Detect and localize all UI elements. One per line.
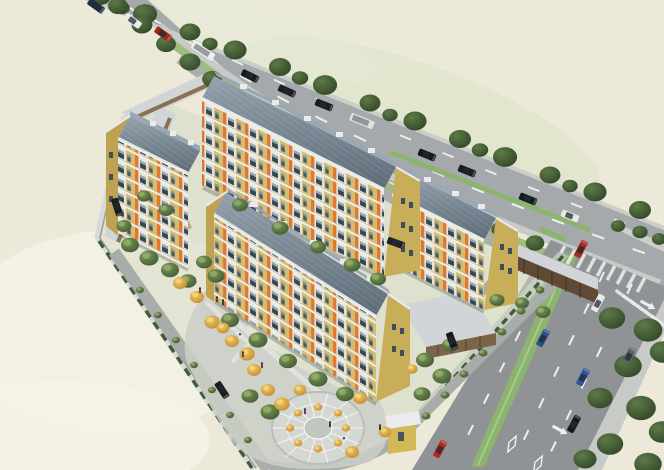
hedge (208, 387, 216, 393)
roof-parapet (272, 100, 279, 105)
courtyard-tree (159, 204, 174, 216)
hedge (226, 412, 234, 418)
autumn-tree (173, 277, 187, 289)
courtyard-tree (249, 332, 268, 347)
courtyard-tree (272, 221, 289, 235)
gable-window (409, 202, 413, 208)
courtyard-tree (279, 354, 297, 368)
gable-window (508, 248, 512, 254)
courtyard-tree (536, 306, 551, 318)
street-tree (634, 318, 663, 341)
street-tree (611, 220, 625, 232)
gable-window (500, 264, 504, 270)
gable-window (109, 174, 113, 180)
street-tree (292, 71, 309, 85)
gable-window (400, 328, 404, 334)
street-tree (223, 41, 246, 60)
courtyard-tree (344, 258, 361, 272)
autumn-tree (217, 323, 230, 334)
courtyard-tree (336, 387, 354, 401)
courtyard-tree (309, 371, 328, 386)
autumn-tree (247, 364, 261, 376)
gable-window (409, 226, 413, 232)
courtyard-tree (416, 353, 434, 367)
plaza-shrub (314, 403, 322, 410)
hedge (441, 391, 450, 398)
courtyard-tree (232, 199, 248, 212)
plaza-center (304, 417, 332, 439)
roof-parapet (336, 132, 343, 137)
plaza-shrub (294, 409, 302, 416)
plaza-shrub (314, 445, 322, 452)
hedge (172, 337, 180, 343)
roof-parapet (452, 191, 459, 196)
hedge (536, 286, 545, 293)
hedge (498, 328, 507, 335)
roof-parapet (240, 84, 247, 89)
gable-window (392, 346, 396, 352)
courtyard-tree (140, 250, 159, 265)
street-tree (629, 201, 651, 219)
roof-parapet (368, 148, 375, 153)
roof-parapet (188, 140, 194, 145)
plaza-shrub (334, 409, 342, 416)
scene-canvas (0, 0, 664, 470)
courtyard-tree (161, 263, 179, 277)
autumn-tree (239, 347, 254, 360)
street-tree (583, 183, 606, 202)
courtyard-tree (117, 220, 132, 232)
autumn-tree (190, 291, 204, 303)
courtyard-tree (196, 256, 212, 269)
street-tree (540, 166, 561, 183)
courtyard-tree (310, 241, 326, 254)
street-tree (180, 53, 201, 70)
courtyard-tree (515, 297, 529, 308)
plaza-shrub (294, 439, 302, 446)
hedge (154, 312, 162, 318)
roof-parapet (150, 121, 156, 126)
autumn-tree (274, 397, 289, 410)
street-tree (382, 109, 397, 122)
pedestrian (379, 424, 381, 430)
hedge (136, 287, 144, 293)
hedge (190, 362, 198, 368)
gate-house-window (398, 432, 404, 441)
gable-window (109, 152, 113, 158)
pedestrian (304, 408, 306, 414)
courtyard-tree (414, 387, 431, 401)
pedestrian (199, 287, 201, 293)
gable-window (401, 222, 405, 228)
roof-parapet (424, 177, 431, 182)
roof-parapet (304, 116, 311, 121)
hedge (422, 412, 431, 419)
street-tree (526, 235, 545, 250)
plaza-shrub (342, 424, 350, 431)
street-tree (403, 112, 426, 131)
plaza-shrub (286, 424, 294, 431)
roof-parapet (478, 204, 485, 209)
street-tree (313, 75, 337, 95)
street-tree (599, 307, 625, 329)
autumn-tree (261, 384, 275, 396)
autumn-tree (353, 392, 367, 404)
street-tree (597, 433, 623, 455)
courtyard-tree (433, 368, 452, 383)
gable-window (401, 198, 405, 204)
roof-parapet (170, 131, 176, 136)
hedge (517, 307, 526, 314)
street-tree (360, 94, 381, 111)
street-tree (472, 143, 489, 157)
pedestrian (343, 437, 345, 443)
street-tree (626, 396, 656, 420)
plaza-shrub (334, 439, 342, 446)
autumn-tree (225, 335, 239, 347)
courtyard-tree (137, 190, 151, 201)
street-tree (573, 450, 596, 469)
autumn-tree (345, 446, 359, 458)
courtyard-tree (370, 273, 386, 286)
courtyard-tree (121, 238, 139, 252)
pedestrian (222, 299, 224, 305)
street-tree (562, 180, 577, 193)
hedge (460, 370, 469, 377)
courtyard-tree (242, 389, 259, 403)
street-tree (449, 130, 471, 148)
pedestrian (239, 333, 241, 339)
street-tree (269, 58, 291, 76)
courtyard-tree (490, 294, 505, 306)
pedestrian (242, 351, 244, 357)
autumn-tree (406, 364, 417, 374)
autumn-tree (294, 385, 307, 396)
gable-window (392, 324, 396, 330)
hedge (479, 349, 488, 356)
pedestrian (216, 296, 218, 302)
street-tree (632, 226, 647, 239)
gable-window (500, 244, 504, 250)
pedestrian (261, 362, 263, 368)
gable-window (508, 268, 512, 274)
roof-parapet (250, 202, 257, 207)
gable-window (400, 350, 404, 356)
aerial-rendering (0, 0, 664, 470)
pedestrian (329, 421, 331, 427)
street-tree (180, 23, 201, 40)
street-tree (493, 147, 517, 167)
gable-window (409, 250, 413, 256)
courtyard-tree (208, 269, 225, 283)
street-tree (587, 388, 612, 409)
hedge (244, 437, 252, 443)
